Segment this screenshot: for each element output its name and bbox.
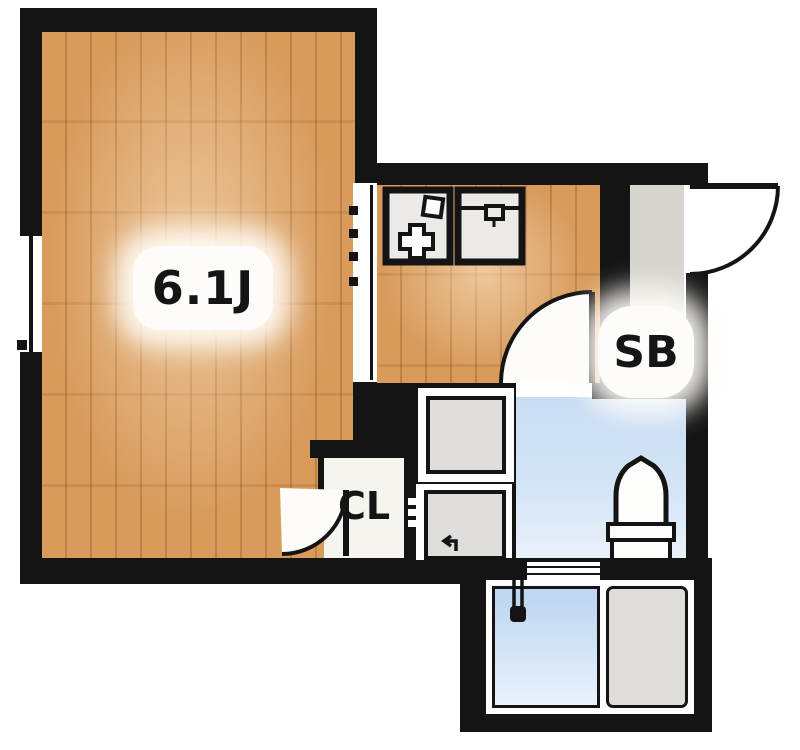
sliding-door-tick [349,277,358,286]
main-room-size-text: 6.1J [152,261,255,315]
window-icon [20,236,42,352]
sliding-door-icon [353,183,377,382]
washing-machine-icon [426,396,506,474]
closet-wall [404,452,410,558]
floor-plan-canvas: 6.1J SB CL [0,0,800,750]
wall-segment [355,8,377,165]
shoe-box-text: SB [613,327,678,378]
bathtub-icon [492,586,600,708]
sliding-door-tick [349,206,358,215]
kitchen-floor [377,185,600,383]
window-end-tick [17,340,27,350]
entry-door-opening [684,185,708,273]
sliding-door-tick [349,252,358,261]
wall-segment [20,8,377,32]
window-glass-line [29,236,33,352]
sliding-door-track [370,185,373,380]
closet-label: CL [324,478,404,534]
bath-door-icon [527,562,600,582]
wall-segment [353,380,377,445]
sliding-door-tick [349,229,358,238]
bath-door-track [527,573,600,575]
bath-door-track [527,566,600,568]
washroom-floor [516,397,686,558]
bath-panel [606,586,688,708]
closet-text: CL [338,484,390,528]
main-room-label: 6.1J [133,246,273,330]
shoe-box-label: SB [598,306,694,398]
wall-segment [355,163,706,185]
washbasin-icon [424,490,506,560]
